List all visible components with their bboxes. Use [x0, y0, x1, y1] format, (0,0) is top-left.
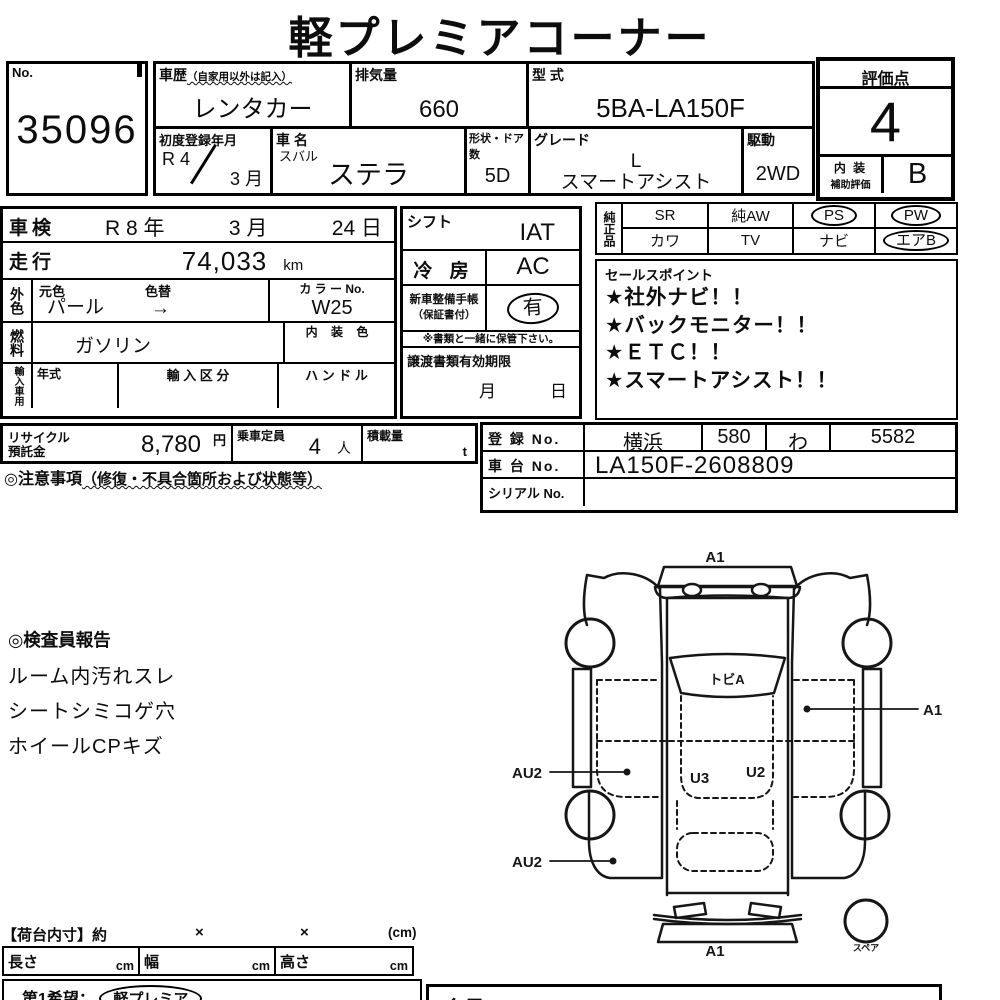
car-damage-diagram: A1 トビA A1 AU2 U3 U2 AU2 A1 スペア	[470, 543, 1000, 983]
first-choice-label: 第1希望：	[22, 991, 95, 1000]
vehicle-info-table: 車歴（自家用以外は記入） レンタカー 排気量 660 型 式 5BA-LA150…	[153, 61, 815, 196]
color-change-arrow: →	[151, 298, 170, 320]
genuine-item-navi: ナビ	[794, 229, 876, 254]
serial-label: シリアル No.	[483, 479, 585, 506]
import-row: 輸入車用 年式 輸 入 区 分 ハ ン ド ル	[3, 364, 394, 408]
drive-label: 駆動	[744, 129, 812, 151]
cargo-heading: 【荷台内寸】約	[2, 927, 107, 944]
chassis-value: LA150F-2608809	[585, 452, 794, 477]
capacity-cell: 乗車定員 4 人	[233, 426, 363, 461]
left-detail-table: 車検 R 8 年 3 月 24 日 走行 74,033 km 外色 元色 色替 …	[0, 206, 397, 419]
exterior-color-label: 外色	[3, 280, 33, 321]
plate-area: 横浜	[585, 425, 703, 450]
first-registration-month: 3 月	[230, 165, 263, 191]
shaken-year: R 8 年	[105, 212, 165, 241]
inspector-report: ◎検査員報告 ルーム内汚れスレ シートシミコゲ穴 ホイールCPキズ	[8, 627, 176, 765]
sales-point-item: ★バックモニター！！	[605, 312, 948, 340]
chassis-number-row: 車 台 No. LA150F-2608809	[483, 452, 955, 479]
rating-score: 4	[820, 89, 951, 157]
mileage-row: 走行 74,033 km	[3, 243, 394, 280]
transfer-docs-row: 譲渡書類有効期限 月 日	[403, 348, 579, 408]
doors-value: 5D	[467, 165, 528, 188]
spare-tire	[845, 900, 887, 942]
car-name-cell: 車 名 スバル ステラ	[273, 129, 467, 194]
transfer-month-label: 月	[479, 377, 496, 402]
model-code-cell: 型 式 5BA-LA150F	[529, 64, 812, 126]
color-no-label: カ ラ ー No.	[270, 280, 394, 297]
genuine-item-sr: SR	[623, 204, 709, 229]
cargo-height-cell: 高さ cm	[276, 948, 412, 974]
cargo-unit-note: (cm)	[388, 925, 417, 940]
shaken-day: 24 日	[332, 212, 382, 241]
doors-cell: 形状・ドア数 5D	[467, 129, 531, 194]
load-label: 積載量	[367, 427, 403, 444]
history-cell: 車歴（自家用以外は記入） レンタカー	[156, 64, 352, 126]
recycle-value: 8,780	[141, 431, 201, 459]
mid-detail-table: シフト IAT 冷 房 AC 新車整備手帳 （保証書付） 有 ※書類と一緒に保管…	[400, 206, 582, 419]
car-name-value: ステラ	[273, 153, 464, 192]
capacity-value: 4	[309, 434, 321, 460]
cargo-length-cell: 長さ cm	[4, 948, 140, 974]
registration-table: 登 録 No. 横浜 580 わ 5582 車 台 No. LA150F-260…	[480, 422, 958, 513]
plate-class: 580	[703, 425, 767, 450]
capacity-label: 乗車定員	[237, 427, 285, 444]
load-unit: t	[463, 444, 467, 459]
rating-label: 評価点	[820, 61, 951, 89]
capacity-unit: 人	[337, 438, 351, 458]
fuel-row: 燃料 ガソリン 内 装 色	[3, 323, 394, 364]
inspector-heading: ◎検査員報告	[8, 627, 176, 652]
history-value: レンタカー	[156, 89, 349, 124]
sales-point-item: ★ＥＴＣ！！	[605, 339, 948, 367]
genuine-item-pw: PW	[876, 204, 956, 229]
corner-tick-mark	[137, 62, 142, 77]
first-registration-cell: 初度登録年月 R 4 3 月	[156, 129, 273, 194]
right-door-panel	[794, 573, 870, 625]
history-note: （自家用以外は記入）	[187, 71, 292, 83]
rear-bumper	[658, 924, 797, 942]
recycle-capacity-row: リサイクル 預託金 8,780 円 乗車定員 4 人 積載量 t	[0, 423, 478, 464]
caution-heading: ◎注意事項（修復・不具合箇所および状態等）	[4, 465, 322, 489]
mileage-label: 走行	[3, 243, 91, 278]
load-cell: 積載量 t	[363, 426, 475, 461]
interior-color-label: 内 装 色	[285, 323, 394, 340]
model-code-label: 型 式	[529, 64, 812, 86]
genuine-item-aw: 純AW	[709, 204, 794, 229]
genuine-item-tv: TV	[709, 229, 794, 254]
first-choice-row: 第1希望： 軽プレミア	[2, 979, 422, 1000]
import-year-label: 年式	[37, 365, 61, 382]
plate-number: 5582	[831, 425, 955, 450]
shift-row: シフト IAT	[403, 209, 579, 251]
car-body-outline	[667, 596, 788, 896]
inspector-finding: シートシミコゲ穴	[8, 695, 176, 730]
displacement-value: 660	[352, 96, 526, 124]
front-bumper	[658, 567, 797, 586]
shaken-month: 3 月	[229, 212, 268, 241]
import-class-label: 輸 入 区 分	[119, 364, 277, 384]
recycle-deposit-cell: リサイクル 預託金 8,780 円	[3, 426, 233, 461]
displacement-cell: 排気量 660	[352, 64, 529, 126]
shaken-row: 車検 R 8 年 3 月 24 日	[3, 209, 394, 243]
color-cell: 元色 色替 パール →	[33, 280, 270, 321]
ac-value: AC	[487, 251, 579, 284]
fuel-cell: ガソリン	[33, 323, 285, 362]
sales-points-label: セールスポイント	[605, 264, 948, 284]
import-year-cell: 年式	[33, 364, 119, 408]
damage-label-right-door: A1	[923, 702, 942, 719]
damage-label-floor-right: U2	[746, 764, 765, 781]
plate-number-row: 登 録 No. 横浜 580 わ 5582	[483, 425, 955, 452]
doors-label: 形状・ドア数	[467, 129, 528, 163]
import-label: 輸入車用	[3, 364, 33, 408]
cargo-dimensions-section: 【荷台内寸】約 × × (cm) 長さ cm 幅 cm 高さ cm 第1希望： …	[2, 924, 434, 1000]
grade-line1: L	[531, 151, 741, 172]
service-book-value: 有	[506, 291, 560, 326]
shift-label: シフト	[407, 211, 452, 232]
rating-box: 評価点 4 内 装 補助評価 B	[816, 57, 955, 201]
recycle-unit: 円	[213, 430, 226, 449]
inspector-finding: ホイールCPキズ	[8, 730, 176, 765]
damage-label-left-rear: AU2	[512, 854, 542, 871]
sales-points-box: セールスポイント ★社外ナビ！！ ★バックモニター！！ ★ＥＴＣ！！ ★スマート…	[595, 259, 958, 420]
handle-label: ハ ン ド ル	[279, 364, 394, 384]
spare-tire-label: スペア	[853, 943, 879, 953]
displacement-label: 排気量	[352, 64, 526, 86]
handle-cell: ハ ン ド ル	[279, 364, 394, 408]
shift-value: IAT	[519, 219, 555, 247]
damage-label-front: A1	[705, 549, 724, 566]
mileage-unit: km	[283, 257, 303, 274]
ac-label: 冷 房	[403, 251, 487, 284]
genuine-item-kawa: カワ	[623, 229, 709, 254]
color-no-cell: カ ラ ー No. W25	[270, 280, 394, 321]
sales-point-item: ★社外ナビ！！	[605, 284, 948, 312]
grade-label: グレード	[531, 129, 741, 151]
wheel-front-left	[566, 619, 614, 667]
shaken-label: 車検	[3, 209, 91, 241]
lot-number-box: No. 35096	[6, 61, 148, 196]
info-row-2: 初度登録年月 R 4 3 月 車 名 スバル ステラ 形状・ドア数 5D グレー…	[156, 129, 812, 194]
lot-number-label: No.	[12, 65, 33, 80]
auction-sheet: 軽プレミアコーナー No. 35096 車歴（自家用以外は記入） レンタカー 排…	[0, 0, 1000, 1000]
info-row-1: 車歴（自家用以外は記入） レンタカー 排気量 660 型 式 5BA-LA150…	[156, 64, 812, 129]
fuel-label: 燃料	[3, 323, 33, 362]
first-registration-year: R 4	[162, 149, 190, 170]
left-sill	[573, 669, 591, 787]
genuine-parts-label: 純正品	[597, 204, 623, 253]
genuine-parts-table: 純正品 SR 純AW PS PW カワ TV ナビ エアB	[595, 202, 958, 255]
chassis-label: 車 台 No.	[483, 452, 585, 477]
genuine-item-ps: PS	[794, 204, 876, 229]
interior-rating-label: 内 装 補助評価	[820, 157, 884, 193]
color-no-value: W25	[270, 297, 394, 320]
lot-number-value: 35096	[9, 108, 145, 153]
serial-number-row: シリアル No.	[483, 479, 955, 506]
transfer-day-label: 日	[550, 377, 567, 402]
member-number-box: 会員No. Y-0712	[426, 984, 942, 1000]
rear-window	[677, 833, 773, 871]
interior-rating-grade: B	[884, 157, 951, 193]
exterior-color-row: 外色 元色 色替 パール → カ ラ ー No. W25	[3, 280, 394, 323]
document-note: ※書類と一緒に保管下さい。	[403, 332, 579, 348]
caution-note: （修復・不具合箇所および状態等）	[82, 471, 322, 488]
cargo-dimensions-table: 長さ cm 幅 cm 高さ cm	[2, 946, 414, 976]
right-sill	[863, 669, 881, 787]
service-book-row: 新車整備手帳 （保証書付） 有	[403, 286, 579, 332]
interior-color-cell: 内 装 色	[285, 323, 394, 362]
cargo-width-cell: 幅 cm	[140, 948, 276, 974]
drive-cell: 駆動 2WD	[744, 129, 812, 194]
fuel-value: ガソリン	[75, 331, 151, 358]
sales-point-item: ★スマートアシスト！！	[605, 367, 948, 395]
damage-label-floor-left: U3	[690, 770, 709, 787]
cargo-times-2: ×	[300, 924, 309, 941]
plate-label: 登 録 No.	[483, 425, 585, 450]
grade-cell: グレード Lスマートアシスト	[531, 129, 744, 194]
genuine-item-airbag: エアB	[876, 229, 956, 254]
import-class-cell: 輸 入 区 分	[119, 364, 279, 408]
history-label: 車歴	[159, 67, 187, 83]
plate-kana: わ	[767, 425, 831, 450]
damage-label-rear: A1	[705, 943, 724, 960]
left-door-panel	[584, 573, 660, 625]
taillight-right	[749, 903, 781, 918]
damage-label-left-front: AU2	[512, 765, 542, 782]
grade-line2: スマートアシスト	[531, 172, 741, 193]
mileage-value: 74,033	[182, 246, 268, 277]
first-choice-value: 軽プレミア	[99, 985, 202, 1000]
service-book-label: 新車整備手帳	[403, 291, 485, 307]
damage-label-windshield: トビA	[709, 672, 745, 687]
transfer-docs-label: 譲渡書類有効期限	[407, 351, 511, 370]
orig-color-value: パール	[47, 292, 104, 319]
ac-row: 冷 房 AC	[403, 251, 579, 286]
drive-value: 2WD	[744, 163, 812, 186]
inspector-finding: ルーム内汚れスレ	[8, 660, 176, 695]
model-code-value: 5BA-LA150F	[529, 93, 812, 124]
cargo-times-1: ×	[195, 924, 204, 941]
taillight-left	[674, 903, 706, 918]
